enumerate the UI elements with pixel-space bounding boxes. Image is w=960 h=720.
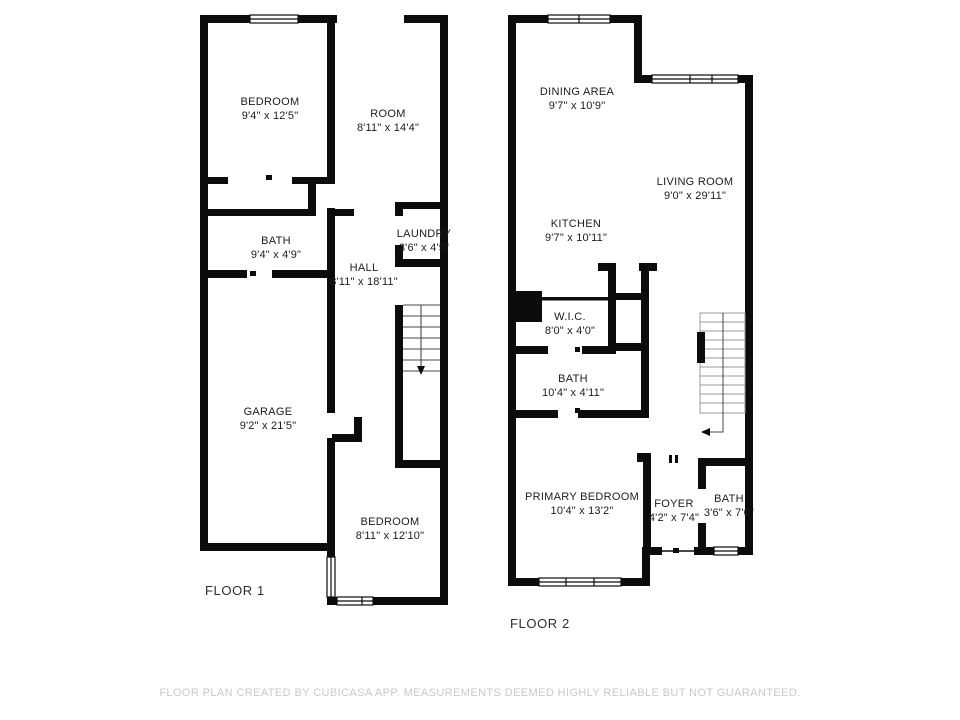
room-label-laundry: LAUNDRY 3'6" x 4'5": [397, 227, 451, 255]
room-label-bath-f2: BATH 10'4" x 4'11": [542, 372, 604, 400]
room-label-bath-f1: BATH 9'4" x 4'9": [251, 234, 301, 262]
room-dimensions: 9'4" x 4'9": [251, 248, 301, 262]
room-dimensions: 9'7" x 10'9": [540, 99, 614, 113]
room-dimensions: 8'11" x 12'10": [356, 529, 424, 543]
room-label-foyer: FOYER 4'2" x 7'4": [649, 497, 699, 525]
room-name: BEDROOM: [356, 515, 424, 529]
room-name: LAUNDRY: [397, 227, 451, 241]
room-label-kitchen: KITCHEN 9'7" x 10'11": [545, 217, 607, 245]
room-name: ROOM: [357, 107, 419, 121]
room-dimensions: 8'11" x 14'4": [357, 121, 419, 135]
room-label-bedroom-1: BEDROOM 9'4" x 12'5": [241, 95, 300, 123]
room-dimensions: 9'2" x 21'5": [240, 419, 297, 433]
room-dimensions: 4'2" x 7'4": [649, 511, 699, 525]
room-label-room: ROOM 8'11" x 14'4": [357, 107, 419, 135]
room-name: BATH: [704, 492, 754, 506]
room-label-bath-small: BATH 3'6" x 7'0": [704, 492, 754, 520]
room-dimensions: 10'4" x 4'11": [542, 386, 604, 400]
room-dimensions: 9'4" x 12'5": [241, 109, 300, 123]
room-name: DINING AREA: [540, 85, 614, 99]
room-name: HALL: [330, 261, 398, 275]
room-name: BATH: [251, 234, 301, 248]
room-name: BEDROOM: [241, 95, 300, 109]
room-label-primary-bedroom: PRIMARY BEDROOM 10'4" x 13'2": [525, 490, 639, 518]
floor1-label: FLOOR 1: [205, 583, 265, 598]
room-dimensions: 8'0" x 4'0": [545, 324, 595, 338]
room-label-bedroom-2: BEDROOM 8'11" x 12'10": [356, 515, 424, 543]
room-name: KITCHEN: [545, 217, 607, 231]
room-label-garage: GARAGE 9'2" x 21'5": [240, 405, 297, 433]
room-name: LIVING ROOM: [657, 175, 734, 189]
room-name: FOYER: [649, 497, 699, 511]
room-label-dining-area: DINING AREA 9'7" x 10'9": [540, 85, 614, 113]
room-name: W.I.C.: [545, 310, 595, 324]
room-dimensions: 10'4" x 13'2": [525, 504, 639, 518]
room-label-hall: HALL 8'11" x 18'11": [330, 261, 398, 289]
room-name: GARAGE: [240, 405, 297, 419]
floor-plan-canvas: BEDROOM 9'4" x 12'5" ROOM 8'11" x 14'4" …: [0, 0, 960, 720]
floor2-label: FLOOR 2: [510, 616, 570, 631]
room-dimensions: 3'6" x 7'0": [704, 506, 754, 520]
room-name: PRIMARY BEDROOM: [525, 490, 639, 504]
floor-plan-drawing: [0, 0, 960, 720]
footer-disclaimer: FLOOR PLAN CREATED BY CUBICASA APP. MEAS…: [0, 687, 960, 699]
room-label-wic: W.I.C. 8'0" x 4'0": [545, 310, 595, 338]
room-dimensions: 9'7" x 10'11": [545, 231, 607, 245]
room-dimensions: 9'0" x 29'11": [657, 189, 734, 203]
floor1-staircase-icon: [403, 305, 440, 375]
room-label-living-room: LIVING ROOM 9'0" x 29'11": [657, 175, 734, 203]
room-dimensions: 3'6" x 4'5": [397, 241, 451, 255]
room-name: BATH: [542, 372, 604, 386]
room-dimensions: 8'11" x 18'11": [330, 275, 398, 289]
